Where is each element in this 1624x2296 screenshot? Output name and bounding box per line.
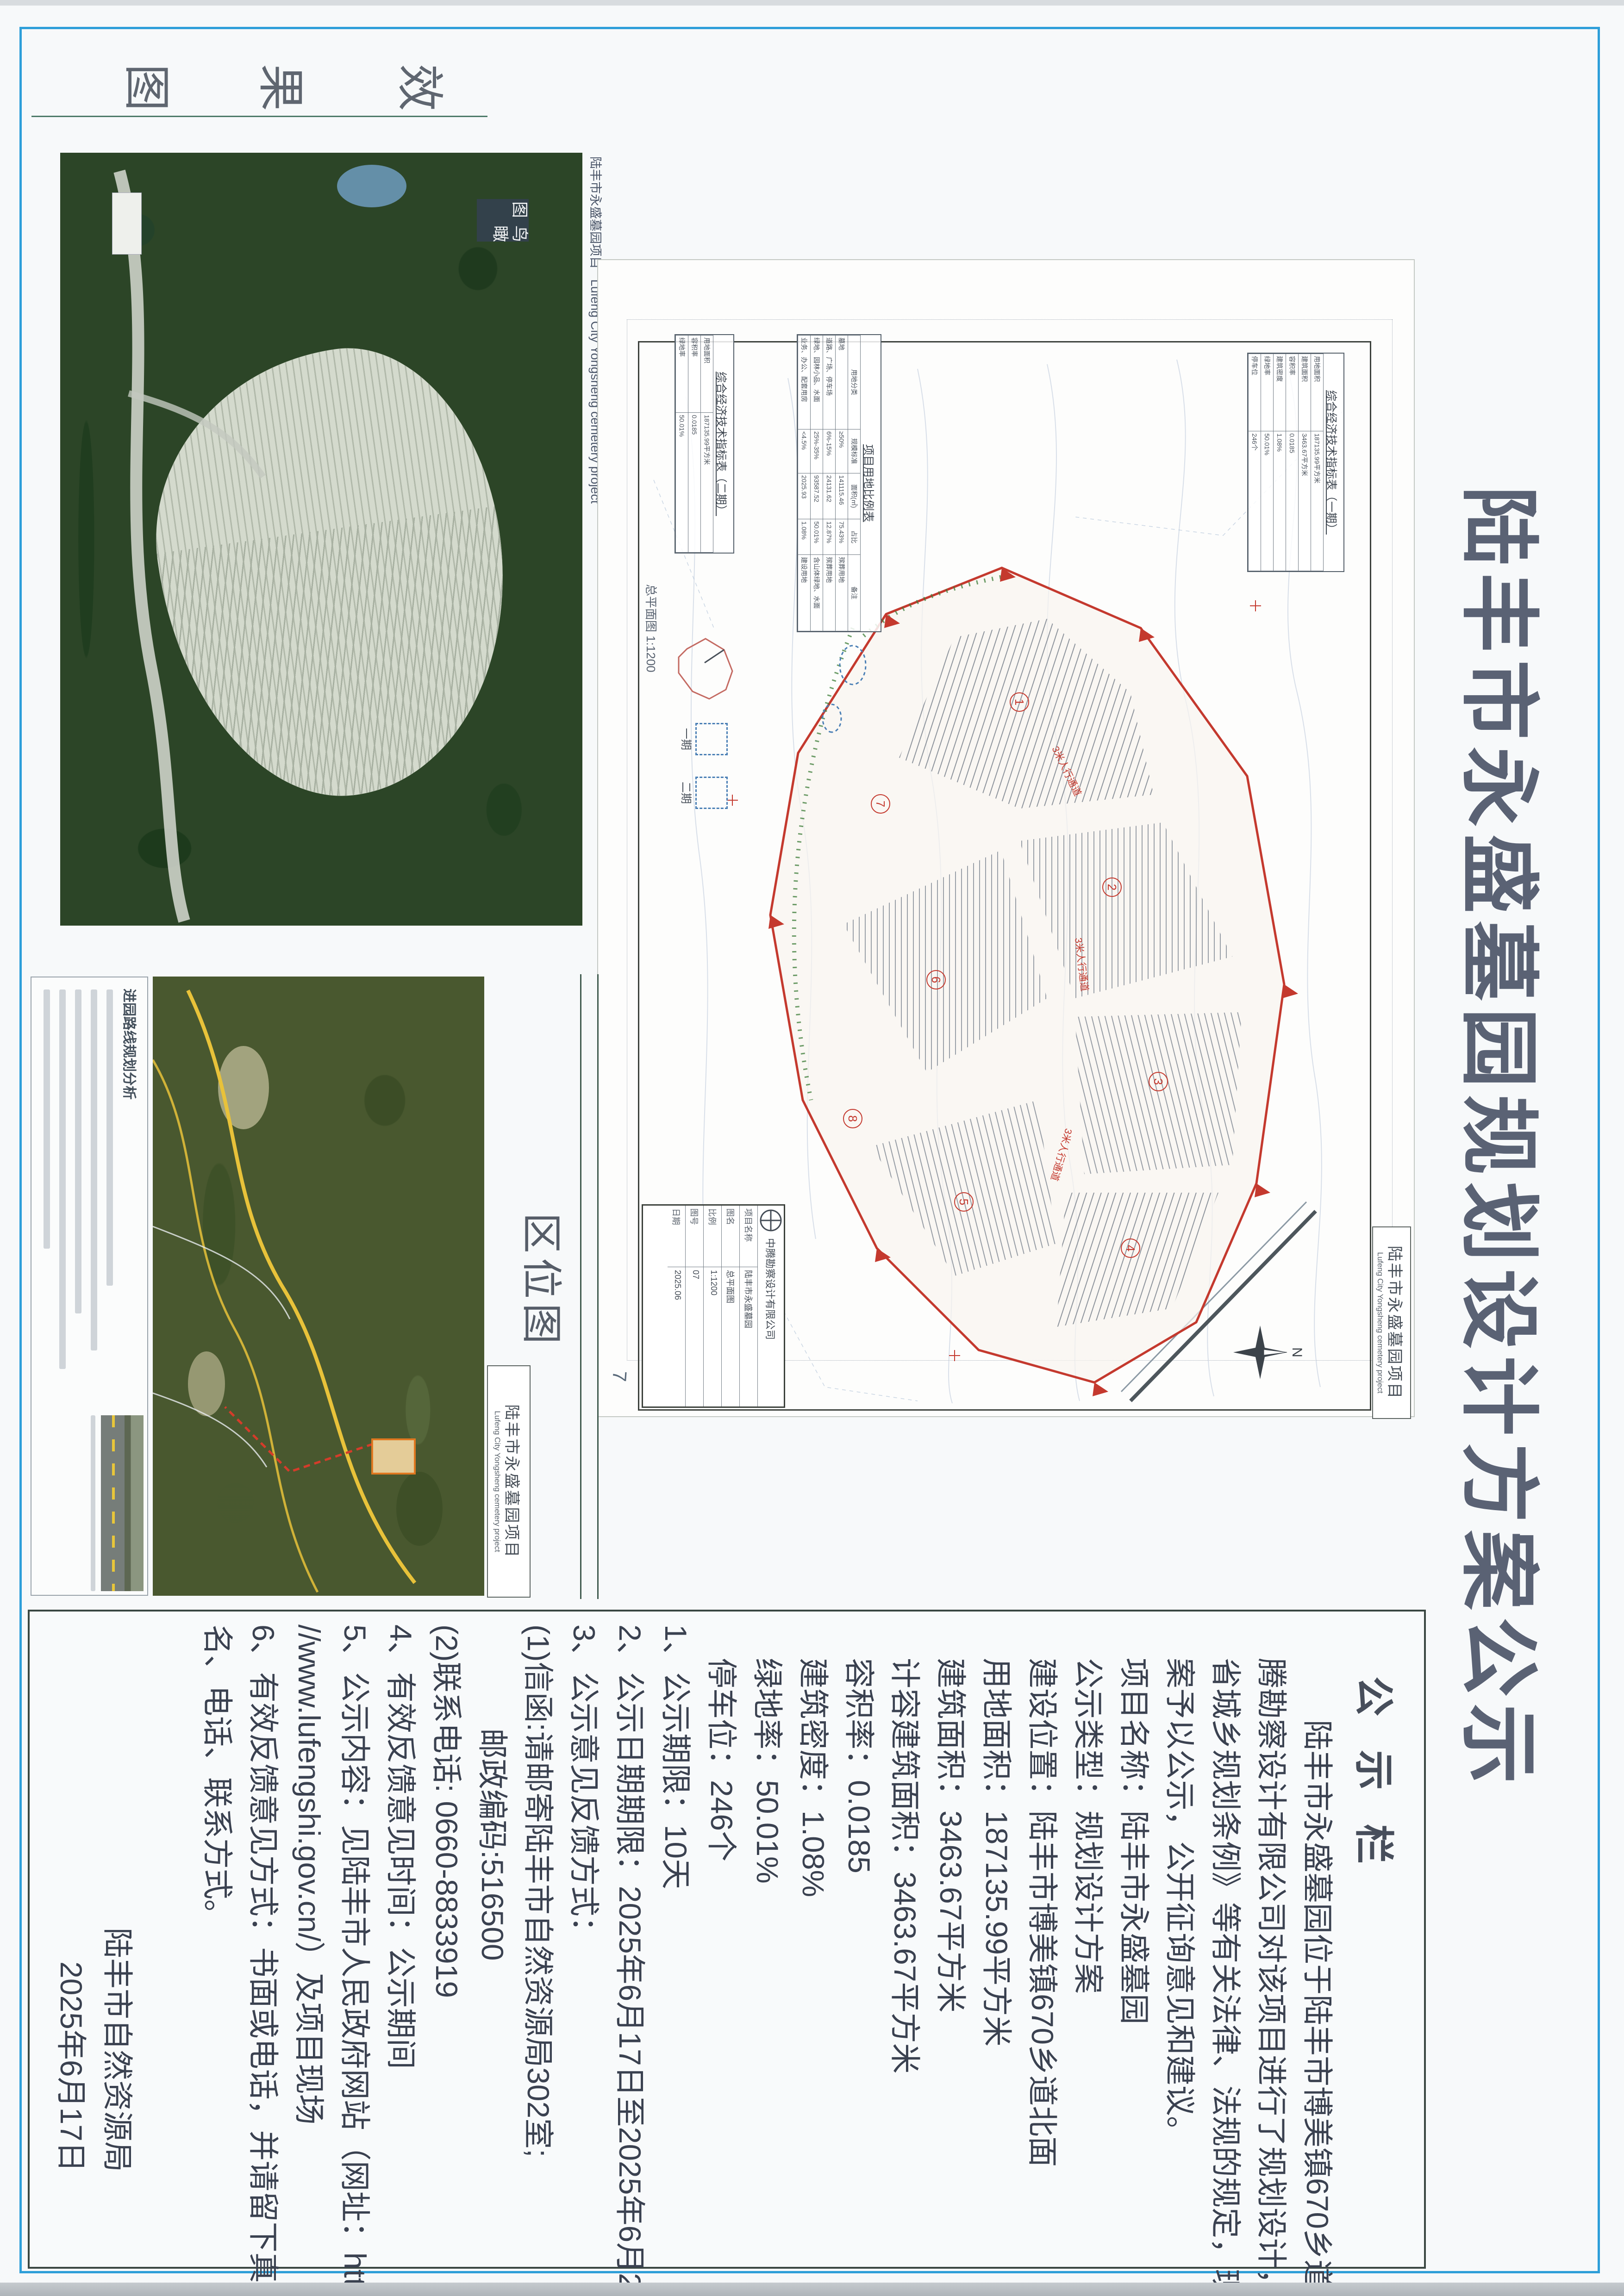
map-caption-en: Lufeng City Yongsheng cemetery project [493, 1411, 502, 1552]
econ-table-title: 综合经济技术指标表（二期） [713, 335, 733, 553]
notice-line: 用地面积：187135.99平方米 [974, 1612, 1019, 2267]
service-building [112, 193, 142, 255]
text-line-placeholder [59, 989, 66, 1369]
birdseye-badge: 鸟瞰图 [477, 199, 529, 242]
notice-line: //www.lufengshi.gov.cn/）及项目现场 [286, 1612, 332, 2267]
svg-text:5: 5 [957, 1199, 971, 1205]
notice-line: 名、电话、联系方式。 [194, 1612, 240, 2267]
econ-table-phase2: 综合经济技术指标表（二期） 用地面积187135.99平方米 容积率0.0185… [675, 334, 734, 554]
notice-line: 容积率：0.0185 [836, 1612, 882, 2267]
notice-line: 建筑面积：3463.67平方米 [928, 1612, 974, 2267]
photo-caption-placeholder [91, 1415, 95, 1591]
map-section-rule [580, 974, 581, 1599]
landscape-document: 陆丰市永盛墓园规划设计方案公示 效 果 图 陆丰市永盛墓园项目 Lufeng C… [0, 0, 1624, 2296]
map-section-rule [597, 974, 599, 1599]
notice-line: 绿地率：50.01% [744, 1612, 790, 2267]
drawing-scale-note: 总平面图 1:1200 [643, 584, 660, 672]
land-use-table-title: 项目用地比例表 [861, 335, 881, 631]
econ-table-grid: 用地面积187135.99平方米 容积率0.0185 绿地率50.01% [675, 335, 713, 553]
entrance-road-photo [101, 1415, 144, 1591]
scan-edge-bottom [0, 2283, 1624, 2296]
notice-line: 陆丰市永盛墓园位于陆丰市博美镇670乡道北面，中 [1294, 1612, 1340, 2267]
land-use-table: 项目用地比例表 用地分类规模标准 面积(㎡)占比 备注 墓地≥50%141115… [797, 334, 881, 632]
render-section-label-char: 图 [116, 64, 184, 111]
phase1-label: 一期 [679, 723, 695, 755]
site-plan-sheet: 陆丰市永盛墓园项目 Lufeng City Yongsheng cemetery… [597, 259, 1415, 1417]
notice-board: 公 示 栏 陆丰市永盛墓园位于陆丰市博美镇670乡道北面，中 腾勘察设计有限公司… [28, 1610, 1426, 2269]
econ-table-title: 综合经济技术指标表（一期） [1324, 354, 1343, 571]
notice-line: 1、公示期限：10天 [653, 1612, 699, 2267]
text-line-placeholder [91, 989, 97, 1350]
notice-line: 腾勘察设计有限公司对该项目进行了规划设计，根据《广东 [1249, 1612, 1294, 2267]
svg-text:6: 6 [929, 977, 943, 983]
location-section-label: 区位图 [515, 1213, 574, 1349]
route-panel-title: 进园路线规划分析 [120, 989, 141, 1100]
render-section-label-char: 果 [250, 64, 319, 111]
econ-table-grid: 用地面积187135.99平方米 建筑面积3463.67平方米 容积率0.018… [1248, 354, 1324, 571]
issuing-authority: 陆丰市自然资源局 [94, 1612, 141, 2172]
render-caption-cn: 陆丰市永盛墓园项目 [588, 156, 602, 269]
text-line-placeholder [75, 989, 81, 1313]
econ-table-phase1: 综合经济技术指标表（一期） 用地面积187135.99平方米 建筑面积3463.… [1247, 353, 1344, 572]
notice-line: 计容建筑面积：3463.67平方米 [882, 1612, 928, 2267]
north-compass: N [1233, 1325, 1305, 1379]
notice-line: 6、有效反馈意见方式：书面或电话，并请留下真实姓 [240, 1612, 286, 2267]
phase2-label: 二期 [679, 777, 695, 809]
road-dashed-line [112, 1415, 115, 1591]
notice-line: 邮政编码:516500 [469, 1612, 515, 2267]
scanned-page: 陆丰市永盛墓园规划设计方案公示 效 果 图 陆丰市永盛墓园项目 Lufeng C… [0, 0, 1624, 2296]
company-name: 中腾勘察设计有限公司 [761, 1235, 781, 1343]
notice-board-header: 公 示 栏 [1349, 1676, 1406, 2267]
notice-line: 项目名称：陆丰市永盛墓园 [1111, 1612, 1157, 2267]
notice-line: 省城乡规划条例》等有关法律、法规的规定，现将本设计方 [1203, 1612, 1249, 2267]
land-use-table-grid: 用地分类规模标准 面积(㎡)占比 备注 墓地≥50%141115.4675.43… [798, 335, 861, 631]
plan-caption-cn: 陆丰市永盛墓园项目 [1385, 1246, 1408, 1400]
notice-line: 2、公示日期期限：2025年6月17日至2025年6月26日 [607, 1612, 653, 2267]
document-title: 陆丰市永盛墓园规划设计方案公示 [1448, 56, 1564, 2221]
pond [337, 165, 406, 207]
plan-caption-band: 陆丰市永盛墓园项目 Lufeng City Yongsheng cemetery… [1372, 1226, 1411, 1419]
notice-signature: 陆丰市自然资源局 2025年6月17日 [30, 1612, 141, 2267]
sheet-page-number: 7 [608, 1370, 631, 1382]
notice-line: 停车位：246个 [699, 1612, 744, 2267]
phase2-swatch [695, 777, 728, 809]
notice-line: 公示类型：规划设计方案 [1065, 1612, 1111, 2267]
svg-text:7: 7 [874, 801, 887, 807]
key-map [668, 630, 738, 704]
phase-legend: 一期 二期 [679, 723, 728, 809]
svg-text:1: 1 [1012, 699, 1026, 705]
company-logo [758, 1206, 784, 1235]
notice-line: (1)信函:请邮寄陆丰市自然资源局302室; [515, 1612, 561, 2267]
location-satellite-map [153, 977, 484, 1596]
phase1-swatch [695, 723, 728, 755]
svg-text:N: N [1289, 1347, 1305, 1357]
svg-text:8: 8 [846, 1115, 860, 1122]
text-line-placeholder [106, 989, 113, 1286]
title-block: 中腾勘察设计有限公司 项目名称陆丰市永盛墓园 图名总平面图 比例1:1200 图… [642, 1204, 785, 1408]
aerial-render-image: 鸟瞰图 [60, 153, 582, 926]
notice-line: 建筑密度：1.08% [790, 1612, 836, 2267]
notice-line: (2)联系电话: 0660-8833919 [424, 1612, 469, 2267]
map-caption-band: 陆丰市永盛墓园项目 Lufeng City Yongsheng cemetery… [487, 1365, 531, 1598]
notice-line: 案予以公示，公开征询意见和建议。 [1157, 1612, 1203, 2267]
render-section-label-char: 效 [389, 64, 457, 111]
notice-line: 3、公示意见反馈方式： [561, 1612, 607, 2267]
notice-date: 2025年6月17日 [48, 1612, 94, 2172]
map-caption-cn: 陆丰市永盛墓园项目 [502, 1405, 525, 1559]
svg-text:4: 4 [1124, 1245, 1137, 1251]
section-divider-line [31, 116, 487, 117]
svg-text:3: 3 [1151, 1078, 1165, 1085]
photo-roads-overlay [60, 153, 582, 926]
route-analysis-panel: 进园路线规划分析 [31, 977, 148, 1596]
map-roads-overlay [153, 977, 484, 1596]
notice-line: 5、公示内容：见陆丰市人民政府网站（网址：http: [332, 1612, 378, 2267]
text-line-placeholder [44, 989, 50, 1249]
notice-line: 4、有效反馈意见时间：公示期间 [378, 1612, 424, 2267]
notice-line: 建设位置：陆丰市博美镇670乡道北面 [1019, 1612, 1065, 2267]
plan-caption-en: Lufeng City Yongsheng cemetery project [1376, 1252, 1385, 1393]
scan-edge-top [0, 0, 1624, 6]
svg-text:2: 2 [1105, 884, 1119, 890]
